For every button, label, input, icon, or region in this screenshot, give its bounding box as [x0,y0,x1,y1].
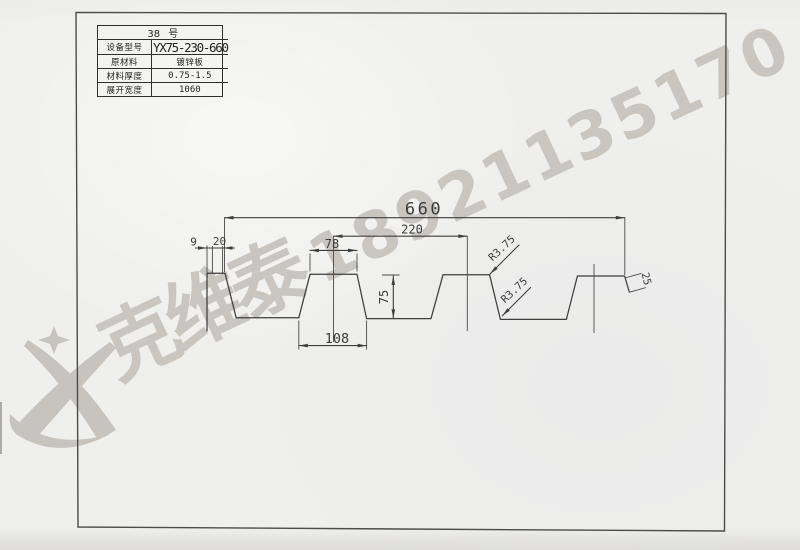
leader-radius-bottom: R3.75 [499,275,531,315]
dim-label-20: 20 [213,235,226,248]
dim-label-108: 108 [325,331,349,347]
dim-label-220: 220 [401,223,423,237]
dim-label-75: 75 [377,290,391,304]
table-row-value: 1060 [151,82,228,96]
table-row-label: 材料厚度 [98,68,151,82]
dim-overall-width: 660 [225,200,625,276]
table-row-label: 展开宽度 [98,82,151,96]
spec-table: 38 号 设备型号 YX75-230-660 原材料 镀锌板 材料厚度 0.75… [97,25,223,97]
dim-edge-tab: 25 [625,271,653,292]
centerlines [334,236,595,342]
dim-label-25: 25 [639,271,654,286]
dim-label-9: 9 [190,236,197,249]
leader-radius-top: R3.75 [486,233,519,274]
dim-label-r375-top: R3.75 [486,233,517,263]
table-row-value: 0.75-1.5 [151,68,228,82]
dim-label-r375-bottom: R3.75 [499,275,530,305]
dim-label-660: 660 [405,200,443,220]
dim-left-lip: 9 20 [190,235,234,273]
dim-rib-pitch: 220 [334,223,468,239]
scanned-drawing-page: 克维泰18921135170 660 [0,0,800,550]
table-row-label: 原材料 [98,54,151,68]
dim-label-78: 78 [325,237,339,251]
table-title: 38 号 [98,26,228,39]
table-row-value: 镀锌板 [151,54,228,68]
dim-rib-bottom-gap: 108 [299,321,367,350]
dim-profile-height: 75 [377,275,400,318]
profile-outline [207,273,629,331]
table-row-value-model: YX75-230-660 [151,39,228,54]
table-row-label: 设备型号 [98,39,151,54]
